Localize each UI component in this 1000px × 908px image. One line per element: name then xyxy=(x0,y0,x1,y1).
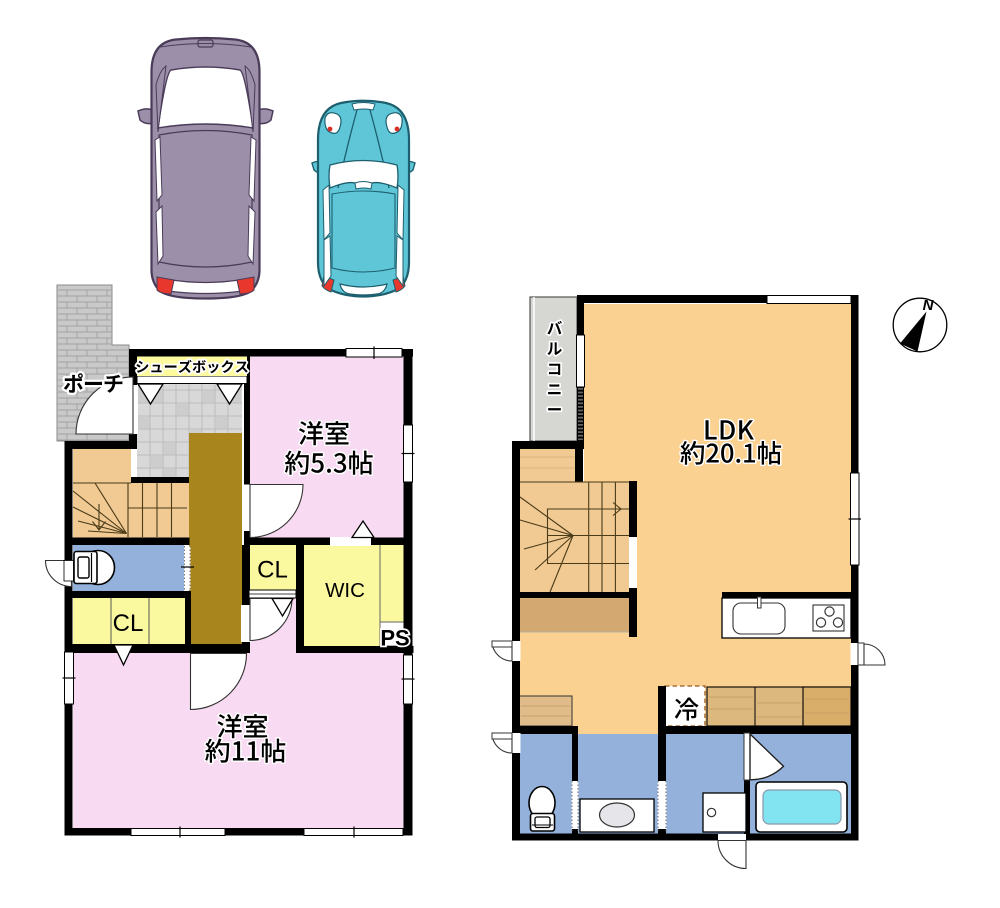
svg-text:WIC: WIC xyxy=(325,579,365,602)
svg-text:N: N xyxy=(923,297,935,314)
svg-text:CL: CL xyxy=(113,610,144,637)
svg-text:PS: PS xyxy=(380,626,409,651)
svg-text:CL: CL xyxy=(257,557,288,584)
